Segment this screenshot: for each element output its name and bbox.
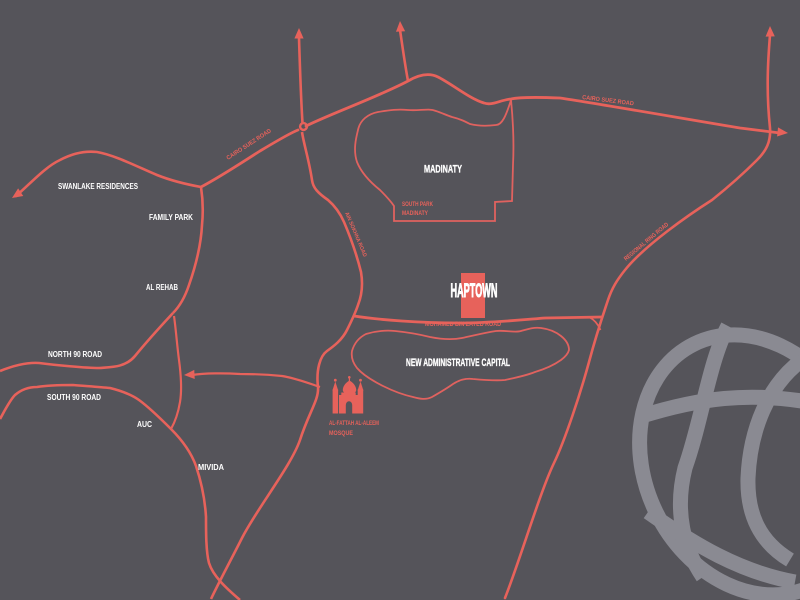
svg-text:NEW ADMINISTRATIVE CAPITAL: NEW ADMINISTRATIVE CAPITAL bbox=[406, 357, 510, 369]
svg-text:MOSQUE: MOSQUE bbox=[329, 430, 354, 437]
svg-text:FAMILY PARK: FAMILY PARK bbox=[149, 213, 193, 222]
svg-text:HAPTOWN: HAPTOWN bbox=[451, 281, 498, 302]
svg-text:SOUTH 90 ROAD: SOUTH 90 ROAD bbox=[47, 393, 101, 402]
svg-text:SWANLAKE RESIDENCES: SWANLAKE RESIDENCES bbox=[58, 182, 139, 191]
svg-text:AUC: AUC bbox=[137, 420, 152, 429]
svg-text:MIVIDA: MIVIDA bbox=[198, 463, 224, 472]
svg-text:NORTH 90 ROAD: NORTH 90 ROAD bbox=[48, 350, 102, 359]
svg-text:MADINATY: MADINATY bbox=[424, 164, 462, 176]
svg-text:AL-FATTAH AL-ALEEM: AL-FATTAH AL-ALEEM bbox=[329, 420, 379, 427]
svg-text:MADINATY: MADINATY bbox=[402, 210, 429, 217]
svg-text:MOHAMED BIN ZAYED ROAD: MOHAMED BIN ZAYED ROAD bbox=[425, 322, 502, 328]
svg-text:AL REHAB: AL REHAB bbox=[146, 283, 178, 292]
svg-text:SOUTH PARK: SOUTH PARK bbox=[402, 201, 433, 208]
